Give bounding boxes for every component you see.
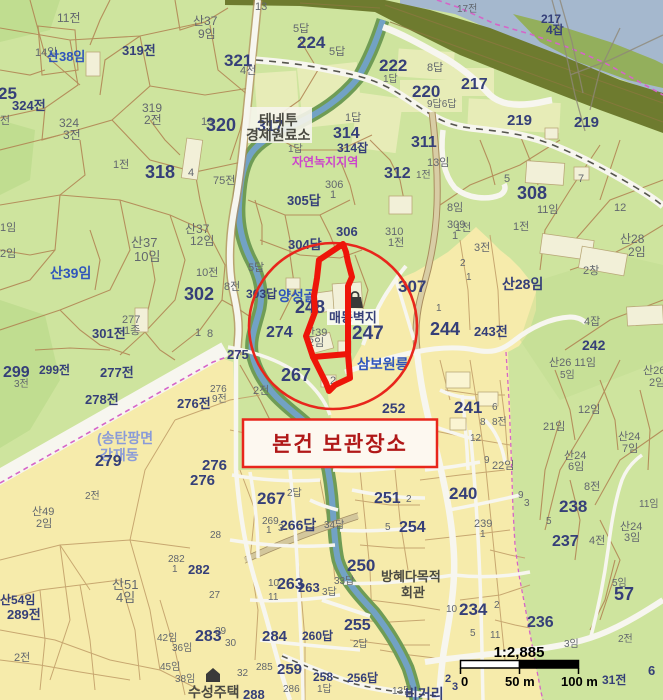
svg-text:2전: 2전 xyxy=(85,490,100,502)
svg-text:224: 224 xyxy=(297,33,326,52)
svg-text:254: 254 xyxy=(399,519,426,536)
svg-text:4: 4 xyxy=(188,167,194,179)
svg-text:324전: 324전 xyxy=(12,98,46,113)
svg-text:30: 30 xyxy=(225,638,237,649)
svg-text:31전: 31전 xyxy=(602,672,626,687)
svg-text:320: 320 xyxy=(206,115,236,135)
svg-text:산28: 산28 xyxy=(620,232,645,246)
svg-text:수성주택: 수성주택 xyxy=(188,684,240,700)
svg-text:289전: 289전 xyxy=(7,607,41,622)
svg-text:산24: 산24 xyxy=(618,430,640,443)
svg-text:2전: 2전 xyxy=(618,633,633,645)
svg-text:1: 1 xyxy=(330,189,336,201)
svg-text:3: 3 xyxy=(452,681,458,693)
svg-text:276전: 276전 xyxy=(177,396,211,411)
svg-text:12: 12 xyxy=(470,433,482,444)
svg-text:237: 237 xyxy=(552,533,579,550)
svg-text:282: 282 xyxy=(188,562,210,577)
svg-text:10: 10 xyxy=(268,578,280,589)
svg-text:2창: 2창 xyxy=(583,264,599,277)
svg-text:2전: 2전 xyxy=(253,384,269,397)
svg-text:45임: 45임 xyxy=(160,660,180,673)
svg-text:33답: 33답 xyxy=(334,575,354,587)
svg-text:22임: 22임 xyxy=(492,459,514,472)
svg-text:243전: 243전 xyxy=(474,324,508,339)
svg-text:276: 276 xyxy=(190,472,215,489)
svg-text:217: 217 xyxy=(461,76,488,93)
svg-text:2임: 2임 xyxy=(36,517,52,530)
svg-text:3임: 3임 xyxy=(624,531,640,544)
svg-text:1전: 1전 xyxy=(455,221,471,234)
svg-text:29: 29 xyxy=(215,626,227,637)
svg-text:278전: 278전 xyxy=(85,392,119,407)
svg-text:286: 286 xyxy=(283,684,300,695)
svg-text:방혜다목적: 방혜다목적 xyxy=(381,569,441,584)
svg-text:9임: 9임 xyxy=(198,27,216,41)
svg-text:8답: 8답 xyxy=(427,61,443,74)
svg-text:236: 236 xyxy=(527,614,554,631)
svg-text:1: 1 xyxy=(436,303,442,314)
svg-text:1임: 1임 xyxy=(0,221,16,234)
svg-text:산38임: 산38임 xyxy=(47,49,85,64)
svg-text:본건 보관장소: 본건 보관장소 xyxy=(272,433,408,456)
svg-text:3답: 3답 xyxy=(322,586,337,598)
svg-text:8: 8 xyxy=(207,328,213,340)
svg-text:17전: 17전 xyxy=(457,3,477,15)
svg-text:34답: 34답 xyxy=(324,519,344,531)
svg-text:2전: 2전 xyxy=(144,113,162,127)
svg-text:12임: 12임 xyxy=(190,234,214,248)
svg-text:0: 0 xyxy=(461,674,468,689)
svg-text:3임: 3임 xyxy=(564,637,579,650)
svg-text:2전: 2전 xyxy=(14,651,30,664)
svg-text:10전: 10전 xyxy=(196,266,218,279)
svg-text:240: 240 xyxy=(449,484,477,503)
svg-text:2: 2 xyxy=(445,673,451,685)
svg-text:238: 238 xyxy=(559,497,587,516)
svg-text:13: 13 xyxy=(255,1,267,13)
svg-text:11: 11 xyxy=(268,592,279,603)
svg-text:28: 28 xyxy=(210,530,222,541)
svg-text:2답: 2답 xyxy=(353,638,368,650)
svg-text:8전: 8전 xyxy=(584,480,600,493)
svg-text:308: 308 xyxy=(517,183,547,203)
svg-text:10임: 10임 xyxy=(134,249,160,264)
svg-text:(송탄팡면: (송탄팡면 xyxy=(97,430,153,446)
svg-text:13임: 13임 xyxy=(427,156,449,169)
svg-text:279: 279 xyxy=(95,453,122,470)
svg-text:301전: 301전 xyxy=(92,326,126,341)
svg-text:1전: 1전 xyxy=(416,169,431,181)
svg-text:5: 5 xyxy=(546,516,552,527)
svg-text:251: 251 xyxy=(374,490,401,507)
svg-text:2임: 2임 xyxy=(649,376,663,389)
svg-text:285: 285 xyxy=(256,662,273,673)
svg-text:5: 5 xyxy=(470,628,476,639)
svg-text:314잡: 314잡 xyxy=(337,140,368,155)
svg-text:테네투: 테네투 xyxy=(259,112,298,128)
svg-text:경제원료소: 경제원료소 xyxy=(246,127,311,143)
svg-text:27: 27 xyxy=(209,590,221,601)
svg-text:6: 6 xyxy=(492,402,498,413)
svg-text:4잡: 4잡 xyxy=(584,315,600,328)
svg-text:비거리: 비거리 xyxy=(405,686,444,700)
svg-text:산26: 산26 xyxy=(643,364,663,377)
svg-text:4임: 4임 xyxy=(116,590,135,605)
svg-text:2임: 2임 xyxy=(628,245,646,259)
svg-text:1답: 1답 xyxy=(317,683,332,695)
svg-text:244: 244 xyxy=(430,319,460,339)
svg-text:매동벽지: 매동벽지 xyxy=(329,310,377,325)
svg-text:222: 222 xyxy=(379,56,407,75)
svg-text:299전: 299전 xyxy=(39,362,70,377)
svg-text:219: 219 xyxy=(574,114,599,131)
svg-text:9전: 9전 xyxy=(212,393,227,405)
svg-text:1: 1 xyxy=(172,564,178,575)
svg-text:삼보원릉: 삼보원릉 xyxy=(357,356,409,372)
svg-text:267: 267 xyxy=(281,365,311,385)
svg-text:9답6답: 9답6답 xyxy=(427,98,457,110)
svg-text:1답: 1답 xyxy=(383,73,398,85)
svg-text:100 m: 100 m xyxy=(561,674,598,689)
svg-text:1전: 1전 xyxy=(513,220,529,233)
svg-text:260답: 260답 xyxy=(302,628,333,643)
svg-text:21임: 21임 xyxy=(543,420,565,433)
svg-text:305답: 305답 xyxy=(287,193,321,208)
svg-text:1:2,885: 1:2,885 xyxy=(494,644,545,661)
svg-text:5임: 5임 xyxy=(560,368,575,381)
svg-text:5: 5 xyxy=(385,522,391,533)
svg-text:274: 274 xyxy=(266,324,293,341)
svg-text:284: 284 xyxy=(262,628,288,645)
svg-text:5답: 5답 xyxy=(248,261,264,274)
svg-text:288: 288 xyxy=(243,687,265,700)
svg-text:3: 3 xyxy=(278,523,284,534)
svg-text:247: 247 xyxy=(352,323,384,344)
svg-text:32: 32 xyxy=(237,668,249,679)
svg-text:1답: 1답 xyxy=(345,111,361,124)
svg-text:회관: 회관 xyxy=(401,585,425,600)
svg-text:산37: 산37 xyxy=(131,235,157,250)
svg-text:5답: 5답 xyxy=(329,45,345,58)
svg-text:258: 258 xyxy=(313,670,333,684)
svg-text:242: 242 xyxy=(582,337,606,353)
svg-text:312: 312 xyxy=(384,165,411,182)
svg-text:1답: 1답 xyxy=(288,143,303,155)
svg-text:11임: 11임 xyxy=(537,203,559,216)
svg-text:311: 311 xyxy=(411,134,437,151)
svg-text:6임: 6임 xyxy=(568,460,584,473)
svg-text:255: 255 xyxy=(344,617,371,634)
svg-text:6: 6 xyxy=(648,663,655,678)
svg-text:1: 1 xyxy=(195,327,201,339)
svg-text:277전: 277전 xyxy=(100,365,134,380)
svg-text:2답: 2답 xyxy=(287,487,302,499)
svg-text:산28임: 산28임 xyxy=(502,276,543,292)
svg-text:3전: 3전 xyxy=(63,128,81,142)
svg-text:7임: 7임 xyxy=(622,442,638,455)
svg-text:9: 9 xyxy=(484,455,490,466)
svg-text:산49: 산49 xyxy=(32,505,54,518)
svg-text:2: 2 xyxy=(494,600,500,611)
svg-text:산26 11임: 산26 11임 xyxy=(549,356,596,369)
svg-text:303답: 303답 xyxy=(246,286,277,301)
svg-text:8전: 8전 xyxy=(492,416,507,428)
svg-text:1: 1 xyxy=(480,529,486,540)
svg-text:267: 267 xyxy=(257,489,285,508)
svg-text:318: 318 xyxy=(145,162,175,182)
svg-text:11임: 11임 xyxy=(639,497,659,510)
svg-text:8임: 8임 xyxy=(447,201,463,214)
svg-text:1: 1 xyxy=(266,525,272,536)
svg-text:75전: 75전 xyxy=(213,174,235,187)
svg-text:2: 2 xyxy=(460,258,466,269)
svg-text:7: 7 xyxy=(578,173,584,185)
svg-text:10: 10 xyxy=(446,604,458,615)
svg-text:259: 259 xyxy=(277,661,302,678)
svg-text:12: 12 xyxy=(614,202,626,214)
svg-text:2임: 2임 xyxy=(0,247,16,260)
svg-text:50 m: 50 m xyxy=(505,674,535,689)
svg-text:5: 5 xyxy=(504,173,510,185)
svg-text:8: 8 xyxy=(480,417,486,428)
svg-text:234: 234 xyxy=(459,600,488,619)
svg-text:319전: 319전 xyxy=(122,43,156,58)
svg-text:산37: 산37 xyxy=(193,14,218,28)
svg-text:314: 314 xyxy=(333,125,360,142)
svg-text:1전: 1전 xyxy=(388,236,404,249)
svg-text:1: 1 xyxy=(466,272,472,283)
svg-text:3전: 3전 xyxy=(474,241,490,254)
svg-text:3: 3 xyxy=(524,498,530,509)
svg-text:241: 241 xyxy=(454,398,482,417)
svg-text:263: 263 xyxy=(298,580,320,595)
svg-text:248: 248 xyxy=(295,297,325,317)
svg-text:3전: 3전 xyxy=(14,378,29,390)
svg-text:1종: 1종 xyxy=(124,325,140,337)
svg-text:302: 302 xyxy=(184,284,214,304)
svg-text:1전: 1전 xyxy=(113,158,129,171)
svg-text:219: 219 xyxy=(507,112,532,129)
svg-text:36임: 36임 xyxy=(172,641,192,654)
svg-text:산39임: 산39임 xyxy=(50,265,91,281)
svg-text:4전: 4전 xyxy=(240,64,256,77)
svg-text:275: 275 xyxy=(227,347,249,362)
svg-text:11: 11 xyxy=(490,630,501,641)
svg-text:산54임: 산54임 xyxy=(0,592,35,607)
svg-text:4전: 4전 xyxy=(589,534,605,547)
svg-text:8전: 8전 xyxy=(224,280,240,293)
svg-text:2: 2 xyxy=(406,494,412,505)
svg-text:12임: 12임 xyxy=(578,403,600,416)
svg-text:252: 252 xyxy=(382,400,406,416)
svg-text:266답: 266답 xyxy=(280,517,316,533)
svg-text:전: 전 xyxy=(0,114,10,127)
svg-text:자연녹지지역: 자연녹지지역 xyxy=(292,154,358,169)
svg-text:256답: 256답 xyxy=(347,670,378,685)
svg-text:4잡: 4잡 xyxy=(546,22,564,37)
svg-text:5임: 5임 xyxy=(612,576,627,589)
svg-text:250: 250 xyxy=(347,556,375,575)
svg-text:11전: 11전 xyxy=(57,11,81,25)
svg-text:306: 306 xyxy=(336,224,358,239)
